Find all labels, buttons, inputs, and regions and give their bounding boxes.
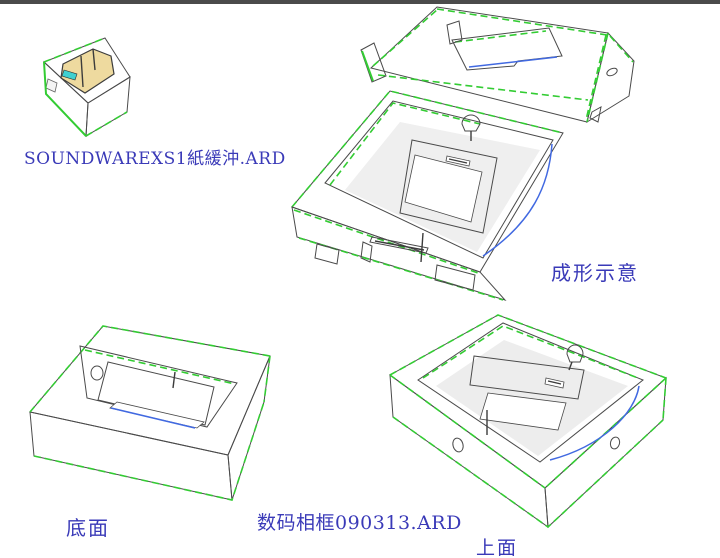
- base-foot-notch: [435, 265, 475, 290]
- design-file-label: 数码相框090313.ARD: [257, 508, 462, 535]
- buffer-thumbnail-3d-view[interactable]: [35, 30, 147, 145]
- bottom-face-3d-view[interactable]: [25, 318, 275, 513]
- forming-caption: 成形示意: [551, 257, 639, 286]
- buffer-thumbnail-model: [44, 38, 130, 136]
- top-face-model: [390, 315, 666, 527]
- base-foot-notch: [315, 244, 339, 264]
- design-canvas: SOUNDWAREXS1紙緩沖.ARD 成形示意 底面 数码相框090313.A…: [0, 0, 720, 558]
- front-oval-hole: [451, 437, 464, 453]
- buffer-insert-panel: [61, 49, 114, 93]
- top-view-caption: 上面: [476, 533, 518, 558]
- half-cyl-tab: [567, 345, 583, 362]
- bottom-face-model: [30, 326, 270, 500]
- lid-handle-cutout: [452, 28, 562, 70]
- wing-tan-tip: [590, 107, 601, 122]
- wing-oval-hole: [606, 67, 619, 77]
- buffer-file-label: SOUNDWAREXS1紙緩沖.ARD: [24, 144, 286, 169]
- side-notch: [46, 79, 57, 92]
- wall-tab: [91, 366, 103, 380]
- window-opening: [110, 402, 204, 428]
- top-face-3d-view[interactable]: [388, 298, 668, 533]
- bottom-view-caption: 底面: [66, 512, 110, 541]
- lid-tan-tab: [447, 21, 462, 44]
- side-oval-hole: [609, 436, 621, 450]
